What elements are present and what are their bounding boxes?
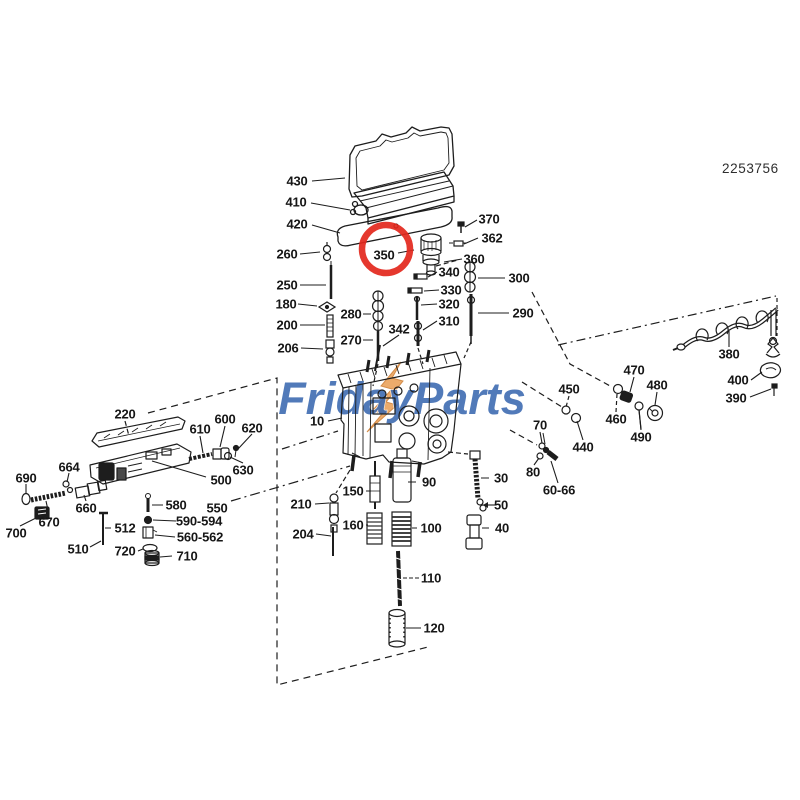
diagram-canvas: FridayParts: [0, 0, 800, 800]
highlight-circle-350: [362, 225, 410, 273]
watermark: FridayParts: [278, 362, 526, 432]
parts-diagram-page: FridayParts: [0, 0, 800, 800]
watermark-text: FridayParts: [278, 373, 526, 424]
construction-lines: [125, 260, 777, 685]
leak-off-pipe-assembly: [673, 309, 781, 396]
rocker-bracket-cluster: [22, 417, 239, 566]
right-fastener-cluster: [537, 385, 663, 460]
part-number: 2253756: [722, 161, 779, 176]
plunger-and-valve-parts: [330, 449, 487, 647]
